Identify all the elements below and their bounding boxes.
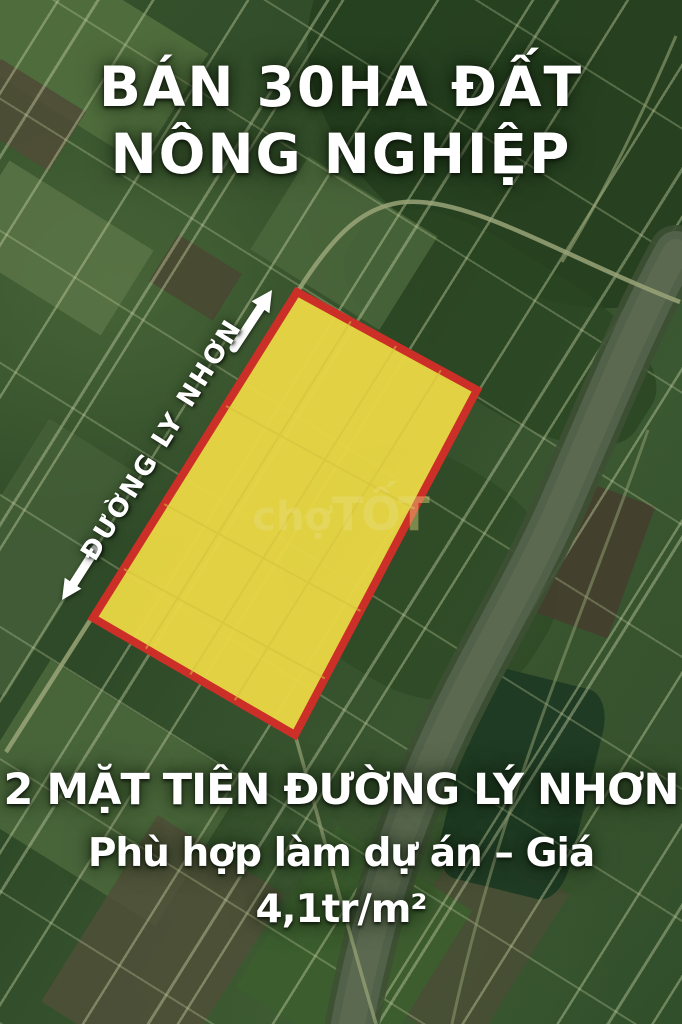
headline: BÁN 30HA ĐẤT NÔNG NGHIỆP xyxy=(0,54,682,188)
footer-line2: Phù hợp làm dự án – Giá 4,1tr/m² xyxy=(0,826,682,938)
watermark-cho: chợ xyxy=(252,494,332,540)
headline-line1: BÁN 30HA ĐẤT xyxy=(0,54,682,121)
footer-line1: 2 MẶT TIÊN ĐƯỜNG LÝ NHƠN xyxy=(0,762,682,818)
footer-text: 2 MẶT TIÊN ĐƯỜNG LÝ NHƠN Phù hợp làm dự … xyxy=(0,762,682,938)
headline-line2: NÔNG NGHIỆP xyxy=(0,121,682,188)
watermark-tot: TỐT xyxy=(332,487,428,541)
land-sale-poster: ĐƯỜNG LY NHƠN chợTỐT BÁN 30HA ĐẤT NÔNG N… xyxy=(0,0,682,1024)
chotot-watermark: chợTỐT xyxy=(252,487,428,541)
